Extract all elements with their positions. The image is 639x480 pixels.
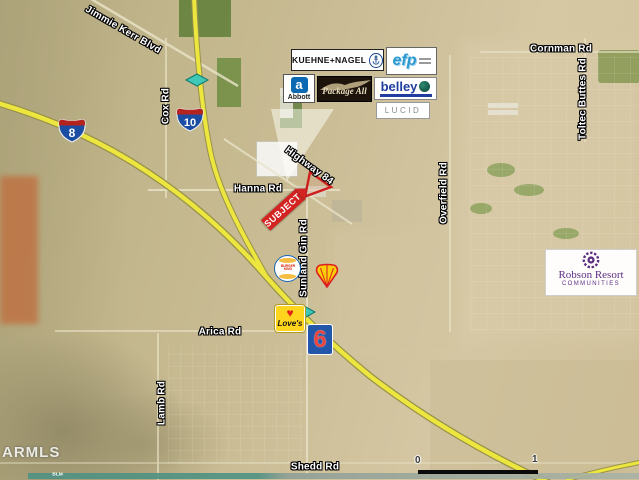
package-all-label: Package All [318,86,371,96]
burger-king-logo: BURGERKING [274,255,301,282]
scale-bar [418,470,538,474]
abbott-logo: a Abbott [283,74,315,103]
road-label-cox: Cox Rd [161,88,172,124]
motel-6-logo: 6 [307,324,333,355]
interstate-10-shield-icon: 10 [175,107,205,132]
heart-icon: ♥ [286,309,293,319]
loves-label: Love's [277,319,302,328]
kuehne-nagel-label: KUEHNE+NAGEL [292,55,366,65]
interstate-8-road [0,102,556,480]
blm-label: BLM [52,472,63,477]
road-label-cornman: Cornman Rd [530,44,592,55]
interstate-10-number: 10 [184,117,196,129]
robson-name-label: Robson Resort [558,269,623,281]
road-label-shedd: Shedd Rd [291,462,339,473]
road-label-toltec-buttes: Toltec Buttes Rd [578,58,589,140]
interstate-8-number: 8 [69,126,76,140]
robson-communities-label: COMMUNITIES [562,281,620,287]
road-label-lamb: Lamb Rd [157,381,168,425]
robson-resort-logo: Robson Resort COMMUNITIES [545,249,637,296]
belley-label: belley [381,80,418,93]
belley-logo: belley [374,77,437,100]
efp-logo: efp [386,47,437,75]
loves-logo: ♥ Love's [275,305,305,332]
belley-bar [380,94,432,97]
road-label-arica: Arica Rd [199,327,242,338]
interstate-8-shield-icon: 8 [57,118,87,143]
kuehne-nagel-logo: KUEHNE+NAGEL [291,49,384,71]
belley-globe-icon [419,81,430,92]
bun-bottom-icon [279,274,296,279]
armls-watermark: ARMLS [2,444,60,461]
abbott-label: Abbott [288,94,311,101]
efp-label: efp [393,53,417,69]
scale-end-label: 1 [532,454,538,465]
scale-start-label: 0 [415,455,421,466]
abbott-mark-icon: a [291,77,308,93]
road-label-overfield: Overfield Rd [439,162,450,224]
anchor-icon [369,53,383,68]
blm-land-strip [28,473,639,479]
aerial-map: Jimmie Kerr Blvd Cox Rd Cornman Rd Tolte… [0,0,639,480]
roads-overlay [0,0,639,480]
interchange-diamond-icon [186,74,208,86]
lucid-logo: LUCID [376,102,430,119]
bun-top-icon [279,258,296,263]
road-label-hanna: Hanna Rd [234,184,282,195]
shell-icon [313,262,341,289]
jimmie-kerr-road-line [86,0,238,86]
package-all-logo: Package All [317,76,372,102]
robson-medallion-icon [582,251,600,269]
shell-logo [313,262,341,289]
road-label-sunland-gin: Sunland Gin Rd [299,219,310,297]
lucid-label: LUCID [385,106,422,115]
efp-tagline-lines [419,57,431,66]
burger-king-label: BURGERKING [280,266,294,272]
motel-6-digit: 6 [313,328,326,352]
